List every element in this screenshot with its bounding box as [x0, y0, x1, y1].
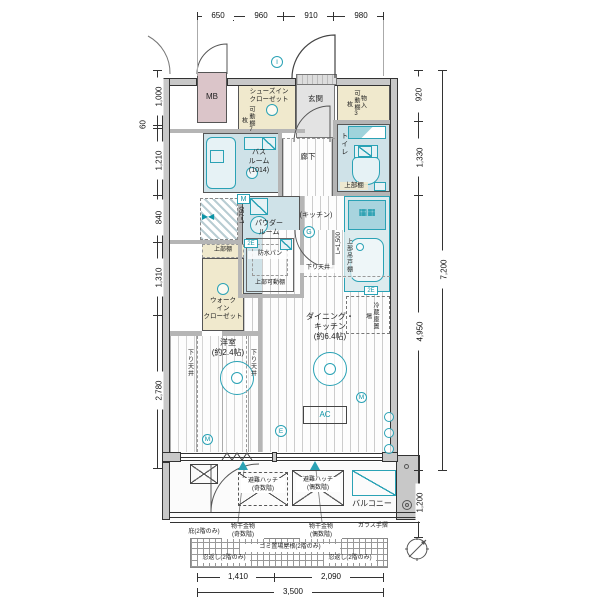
- garbage-roof-label: ゴミ置場屋根(2階のみ): [240, 544, 340, 552]
- bath-control-panel: [210, 150, 224, 163]
- dim-tick: [197, 573, 198, 582]
- toilet-upper-shelf-label: 上部棚: [340, 182, 368, 190]
- dim-tick: [414, 470, 423, 471]
- dim-bottom-3500: 3,500: [274, 587, 312, 596]
- toilet-bowl: [352, 157, 380, 185]
- dining-kitchen-label: ダイニング・ キッチン (約6.4帖): [294, 312, 366, 342]
- toilet-hand-basin: [374, 182, 386, 191]
- hallway-label: 廊下: [294, 152, 322, 161]
- evac-hatch-odd-label: 避難ハッチ (奇数階): [241, 478, 285, 493]
- west-ceiling-line-right: [246, 336, 247, 452]
- entrance-label: 玄関: [296, 94, 335, 103]
- dim-left-60: 60: [139, 113, 148, 137]
- glass-railing-mid: [170, 517, 420, 518]
- powder-mirror-cabinet: [250, 198, 268, 215]
- entrance-step-line: [282, 138, 335, 139]
- dim-right-7200: 7,200: [440, 251, 449, 289]
- stove-grid-icon: ▦▦: [352, 207, 382, 218]
- balcony-panel: [352, 470, 396, 496]
- mb-door-arc: [197, 44, 227, 74]
- washer-length-label: L=750: [240, 200, 246, 230]
- laundry-fitting-odd-label: 物干金物 (奇数階): [222, 524, 264, 539]
- wall-symbol-c: [384, 444, 394, 454]
- storage-shelf-label: 可動棚3枚: [344, 88, 359, 120]
- wall-symbol-b: [384, 428, 394, 438]
- dim-tick: [438, 470, 447, 471]
- dk-m-symbol: M: [356, 392, 367, 403]
- spikes-right-label: 忍返し(2階のみ): [324, 555, 376, 563]
- balcony-vent: [404, 464, 409, 469]
- window-west-rail: [181, 457, 272, 458]
- dim-tick: [153, 315, 162, 316]
- dim-tick: [414, 195, 423, 196]
- upper-movable-shelf-label: 上部可動棚: [246, 280, 294, 288]
- dim-tick: [153, 195, 162, 196]
- kitchen-g-symbol: G: [303, 226, 315, 238]
- dim-right-4950: 4,950: [416, 313, 425, 351]
- wall-symbol-a: [384, 412, 394, 422]
- dim-ext-line: [197, 20, 198, 76]
- laundry-fitting-odd-icon: [238, 461, 248, 470]
- entrance-i-symbol: I: [271, 56, 283, 68]
- dim-left-1000: 1,000: [155, 78, 164, 116]
- dim-tick: [197, 588, 198, 597]
- kitchen-length-label: L=1,500: [336, 226, 342, 260]
- wall-west-dk: [258, 298, 262, 452]
- dim-bottom-2090: 2,090: [312, 572, 350, 581]
- wall-bath-hall: [278, 133, 282, 196]
- dim-tick: [283, 12, 284, 21]
- dim-left-2780: 2,780: [155, 372, 164, 410]
- washer-faucet: [280, 239, 292, 250]
- wic-light-symbol: [217, 283, 229, 295]
- balcony-label: バルコニー: [344, 499, 400, 509]
- kitchen-note-label: (キッチン): [294, 212, 338, 221]
- storage-label: 物入: [358, 92, 366, 112]
- eaves-label: 庇(2階のみ): [184, 529, 224, 537]
- powder-room-label: パウダー ルーム: [244, 220, 294, 238]
- evac-hatch-even-label: 避難ハッチ (偶数階): [296, 477, 340, 492]
- wall-top-mid: [227, 78, 296, 86]
- ground-grid: [190, 538, 388, 568]
- wall-sic-bath: [170, 129, 305, 133]
- wic-label: ウォーク イン クローゼット: [202, 297, 244, 321]
- west-light-inner: [231, 372, 243, 384]
- glass-handrail-label: ガラス手摺: [352, 523, 394, 531]
- wall-storage-toilet: [337, 120, 390, 124]
- toilet-lid: [358, 146, 372, 157]
- dim-right-1330: 1,330: [416, 139, 425, 177]
- ac-label: AC: [303, 410, 347, 420]
- spikes-left-label: 忍返し(2階のみ): [198, 555, 250, 563]
- entrance-door-arc: [292, 35, 335, 78]
- dim-top-650: 650: [202, 11, 234, 20]
- dim-tick: [383, 573, 384, 582]
- upper-hanging-cupboard-label: 上部吊戸棚: [344, 232, 352, 278]
- dk-light-inner: [324, 363, 336, 375]
- dk-lowered-ceiling-line: [304, 276, 390, 277]
- wall-ps-wic: [170, 240, 240, 244]
- wall-wic-west-b: [222, 331, 262, 336]
- compass: [405, 537, 429, 561]
- entrance-door-sill: [296, 74, 337, 85]
- toilet-hanging-cupboard: [348, 126, 386, 139]
- valve-icon: ▶◀: [198, 212, 218, 222]
- dim-tick: [414, 121, 423, 122]
- dim-tick: [414, 70, 423, 71]
- dim-left-840: 840: [155, 200, 164, 236]
- dk-e-symbol: E: [275, 425, 287, 437]
- bathroom-label: バス ルーム (1014): [240, 149, 278, 175]
- dim-right-920: 920: [415, 77, 424, 113]
- floor-plan: ▶◀ M ▦▦: [0, 0, 600, 600]
- dim-tick: [153, 468, 162, 469]
- west-lowered-ceiling-left: 下り天井: [185, 346, 193, 380]
- west-lowered-ceiling-right: 下り天井: [248, 346, 256, 380]
- dim-tick: [383, 588, 384, 597]
- wall-right: [390, 78, 398, 455]
- mb-label: MB: [197, 92, 227, 102]
- dim-tick: [153, 70, 162, 71]
- dim-tick: [153, 128, 162, 129]
- dim-top-960: 960: [245, 11, 277, 20]
- dim-tick: [274, 573, 275, 582]
- waterproof-pan-label: 防水パン: [248, 251, 292, 259]
- dim-top-980: 980: [345, 11, 377, 20]
- sic-shelf-label: 可動棚7枚: [239, 103, 254, 137]
- wall-bottom-stub-left: [162, 452, 181, 462]
- outlet-2e-washer: 2E: [244, 239, 258, 248]
- wall-top-right: [335, 78, 398, 86]
- dim-left-1210: 1,210: [155, 142, 164, 180]
- balcony-drain-inner: [405, 503, 409, 507]
- dim-ext-line: [383, 20, 384, 76]
- neighbor-door-arc: [148, 36, 170, 74]
- wall-balcony-left: [162, 462, 170, 520]
- west-m-symbol: M: [202, 434, 213, 445]
- kitchen-faucet: [356, 243, 364, 251]
- window-dk-rail: [277, 457, 382, 458]
- wall-washer-bottom: [242, 294, 304, 298]
- dim-tick: [153, 125, 162, 126]
- dk-lowered-ceiling-label: 下り天井: [300, 265, 336, 273]
- laundry-fitting-even-label: 物干金物 (偶数階): [300, 524, 342, 539]
- sic-light-symbol: [266, 104, 278, 116]
- wic-upper-shelf-label: 上部棚: [202, 247, 244, 255]
- dim-bottom-1410: 1,410: [220, 572, 256, 581]
- dim-tick: [438, 70, 447, 71]
- sic-label: シューズイン クローゼット: [242, 88, 296, 104]
- bathtub: [206, 137, 236, 189]
- dim-top-910: 910: [295, 11, 327, 20]
- outlet-2e-fridge: 2E: [364, 286, 378, 295]
- dim-tick: [153, 242, 162, 243]
- laundry-fitting-even-icon: [310, 461, 320, 470]
- toilet-label: トイレ: [339, 128, 348, 160]
- dim-right-1200: 1,200: [416, 484, 425, 522]
- balcony-box: [190, 464, 218, 484]
- dim-tick: [414, 537, 423, 538]
- wall-hall-toilet: [333, 120, 337, 196]
- dim-left-1310: 1,310: [155, 259, 164, 297]
- west-ceiling-line-left: [197, 336, 198, 452]
- dim-tick: [333, 12, 334, 21]
